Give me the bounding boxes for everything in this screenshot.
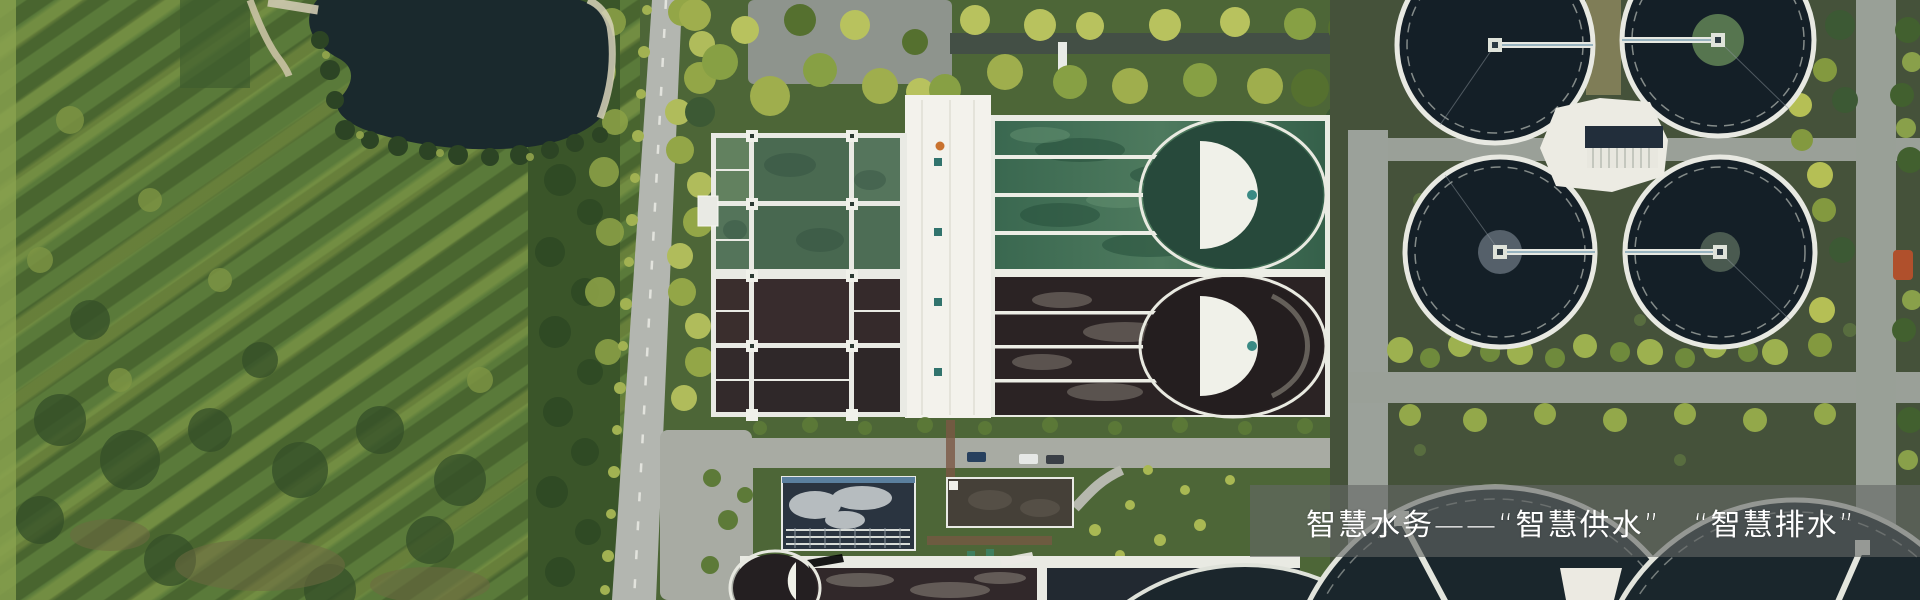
- road-below-clarifiers: [1348, 372, 1920, 403]
- central-platform: [1540, 98, 1668, 192]
- tank-platform: [1560, 568, 1622, 600]
- channel-uturn-lower: [1140, 275, 1326, 417]
- caption-text: 智慧水务——“智慧供水” “智慧排水”: [1306, 500, 1856, 544]
- caption-bar: 智慧水务——“智慧供水” “智慧排水”: [1250, 485, 1920, 557]
- hero-banner: 智慧水务——“智慧供水” “智慧排水”: [0, 0, 1920, 600]
- orange-equipment: [936, 142, 945, 151]
- plant-roof-strip: [905, 95, 991, 418]
- clarifier-4: [1625, 157, 1815, 347]
- building-a: [782, 477, 915, 550]
- annex-cell: [698, 196, 718, 226]
- car-white: [1019, 454, 1038, 464]
- platform-building-roof: [1585, 126, 1663, 148]
- car-dark: [1046, 455, 1064, 464]
- rust-structure: [1893, 250, 1913, 280]
- tree-alley-road: [950, 33, 1330, 54]
- building-b: [947, 478, 1073, 527]
- treatment-plant: [698, 95, 1330, 421]
- car-blue: [967, 452, 986, 462]
- red-path: [946, 420, 955, 478]
- channel-uturn-upper: [1140, 118, 1326, 272]
